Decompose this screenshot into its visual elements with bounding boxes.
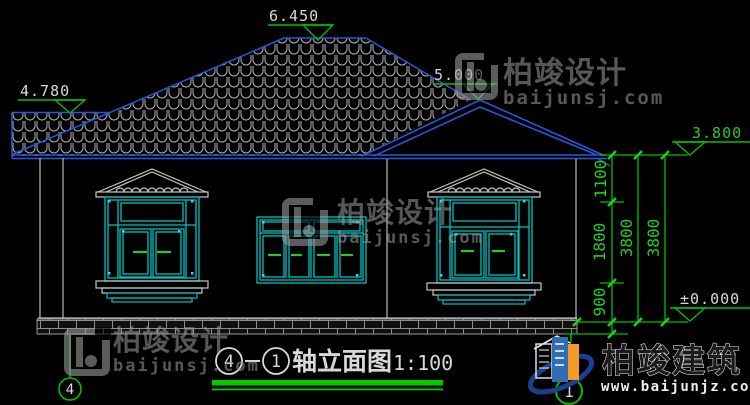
title-name: 轴立面图	[292, 347, 392, 376]
cad-elevation-drawing: 6.450 4.780 5.000 3.800 ±0.000	[0, 0, 750, 405]
bay-roof-scallops-right	[448, 188, 520, 192]
dim-total-left: 3800	[617, 219, 636, 258]
footer-logo: 柏竣建筑 www.baijunjz.com	[526, 336, 750, 399]
level-ground: ±0.000	[670, 290, 750, 321]
bay-roof-scallops-left	[116, 188, 188, 192]
level-ridge: 6.450	[268, 7, 333, 40]
watermark-brand: 柏竣设计	[503, 56, 627, 91]
dimension-chain: 1100 1800 900 3800 3800	[565, 151, 688, 338]
logo-building-icon	[534, 336, 579, 382]
title-axis-end: 1	[271, 352, 281, 372]
window-sill-right	[427, 283, 541, 304]
bay-window-left	[96, 169, 208, 302]
level-porch: 4.780	[18, 82, 85, 113]
dim-upper: 1100	[591, 160, 610, 199]
footer-site: www.baijunjz.com	[601, 379, 750, 395]
watermark-logo-icon	[282, 197, 329, 246]
footer-brand: 柏竣建筑	[602, 341, 742, 380]
elevation-svg: 6.450 4.780 5.000 3.800 ±0.000	[0, 0, 750, 405]
level-eave: 3.800	[672, 124, 750, 155]
window-frame-left	[105, 197, 199, 281]
watermark-site: baijunsj.com	[503, 87, 664, 109]
axis-bubble-left-label: 4	[66, 382, 74, 398]
watermark-brand: 柏竣设计	[113, 324, 229, 357]
level-ridge-value: 6.450	[269, 7, 319, 25]
level-eave-value: 3.800	[692, 124, 742, 142]
dim-total-right: 3800	[644, 219, 663, 258]
watermark-site: baijunsj.com	[113, 356, 260, 376]
title-scale: 1:100	[393, 351, 453, 375]
title-underline-thick	[212, 380, 443, 386]
window-sill-left	[96, 281, 208, 302]
watermark-brand: 柏竣设计	[337, 196, 453, 229]
level-porch-value: 4.780	[20, 82, 70, 100]
watermark-logo-icon	[64, 327, 111, 376]
watermark-top-right: 柏竣设计 baijunsj.com	[455, 52, 664, 109]
bay-roof-right	[428, 169, 540, 197]
watermark-site: baijunsj.com	[337, 228, 484, 248]
title-underline-thin	[212, 389, 443, 391]
watermark-logo-icon	[455, 52, 499, 100]
bay-roof-left	[96, 169, 208, 197]
dim-middle: 1800	[590, 223, 609, 262]
level-ground-value: ±0.000	[680, 290, 740, 308]
dim-lower: 900	[590, 288, 609, 317]
